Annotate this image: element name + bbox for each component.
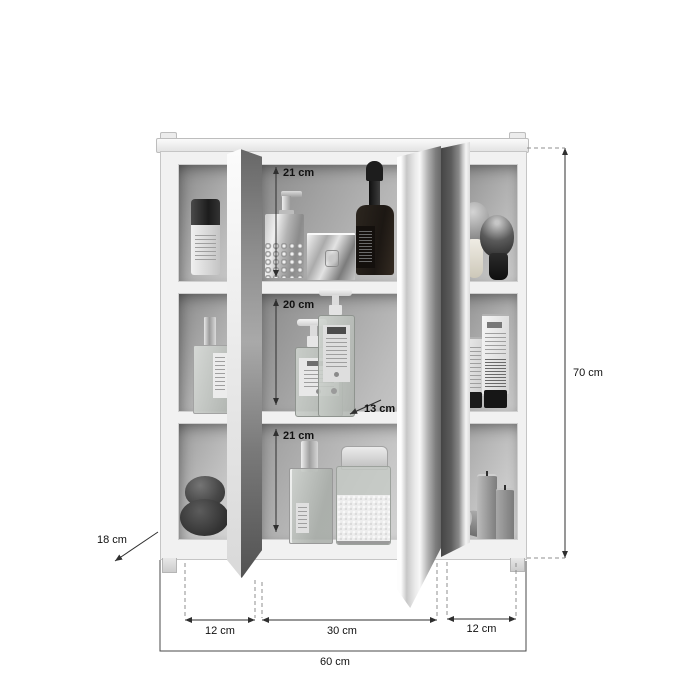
label-total-height: 70 cm [573, 367, 603, 379]
label-right-width: 12 cm [447, 623, 516, 635]
label-left-width: 12 cm [185, 625, 255, 637]
dimension-lines [0, 0, 700, 700]
label-middle-shelf-height: 20 cm [283, 299, 314, 311]
product-dimension-diagram: 21 cm 20 cm 21 cm 13 cm 70 cm 18 cm 12 c… [0, 0, 700, 700]
label-center-width: 30 cm [262, 625, 422, 637]
label-shelf-depth: 13 cm [364, 403, 395, 415]
label-top-shelf-height: 21 cm [283, 167, 314, 179]
label-bottom-shelf-height: 21 cm [283, 430, 314, 442]
label-total-width: 60 cm [160, 656, 510, 668]
bracket-total-width [160, 560, 526, 651]
label-total-depth: 18 cm [97, 534, 127, 546]
